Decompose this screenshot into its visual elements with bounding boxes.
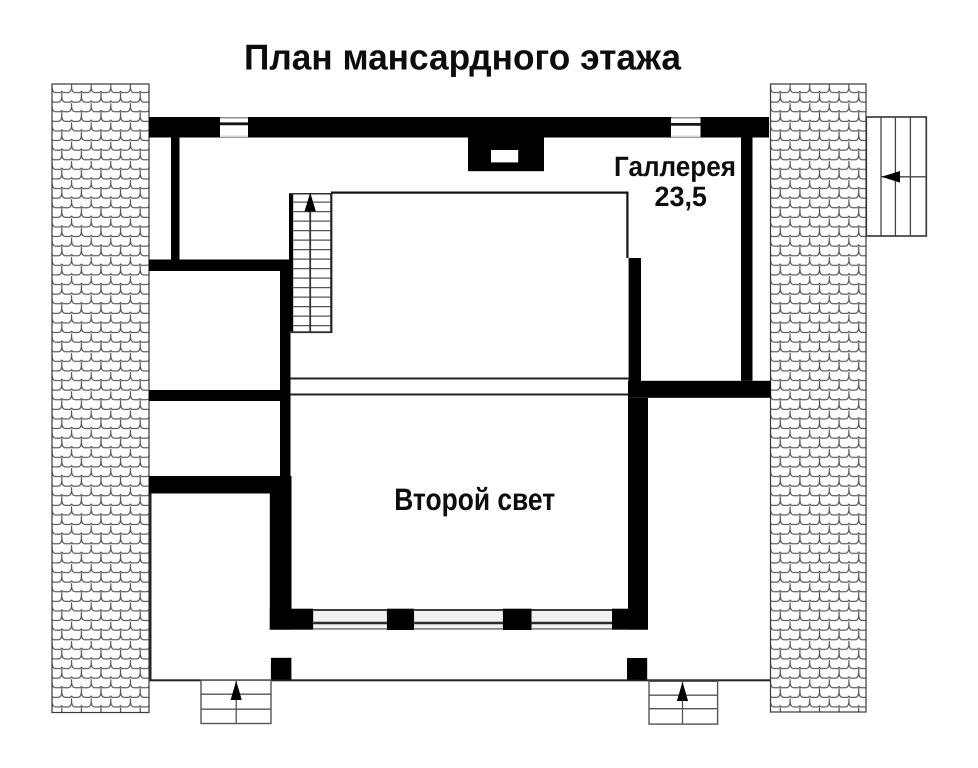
svg-text:План мансардного этажа: План мансардного этажа [244, 37, 682, 78]
svg-text:23,5: 23,5 [654, 181, 707, 212]
svg-text:Второй свет: Второй свет [394, 482, 555, 517]
svg-text:Галлерея: Галлерея [614, 151, 736, 182]
